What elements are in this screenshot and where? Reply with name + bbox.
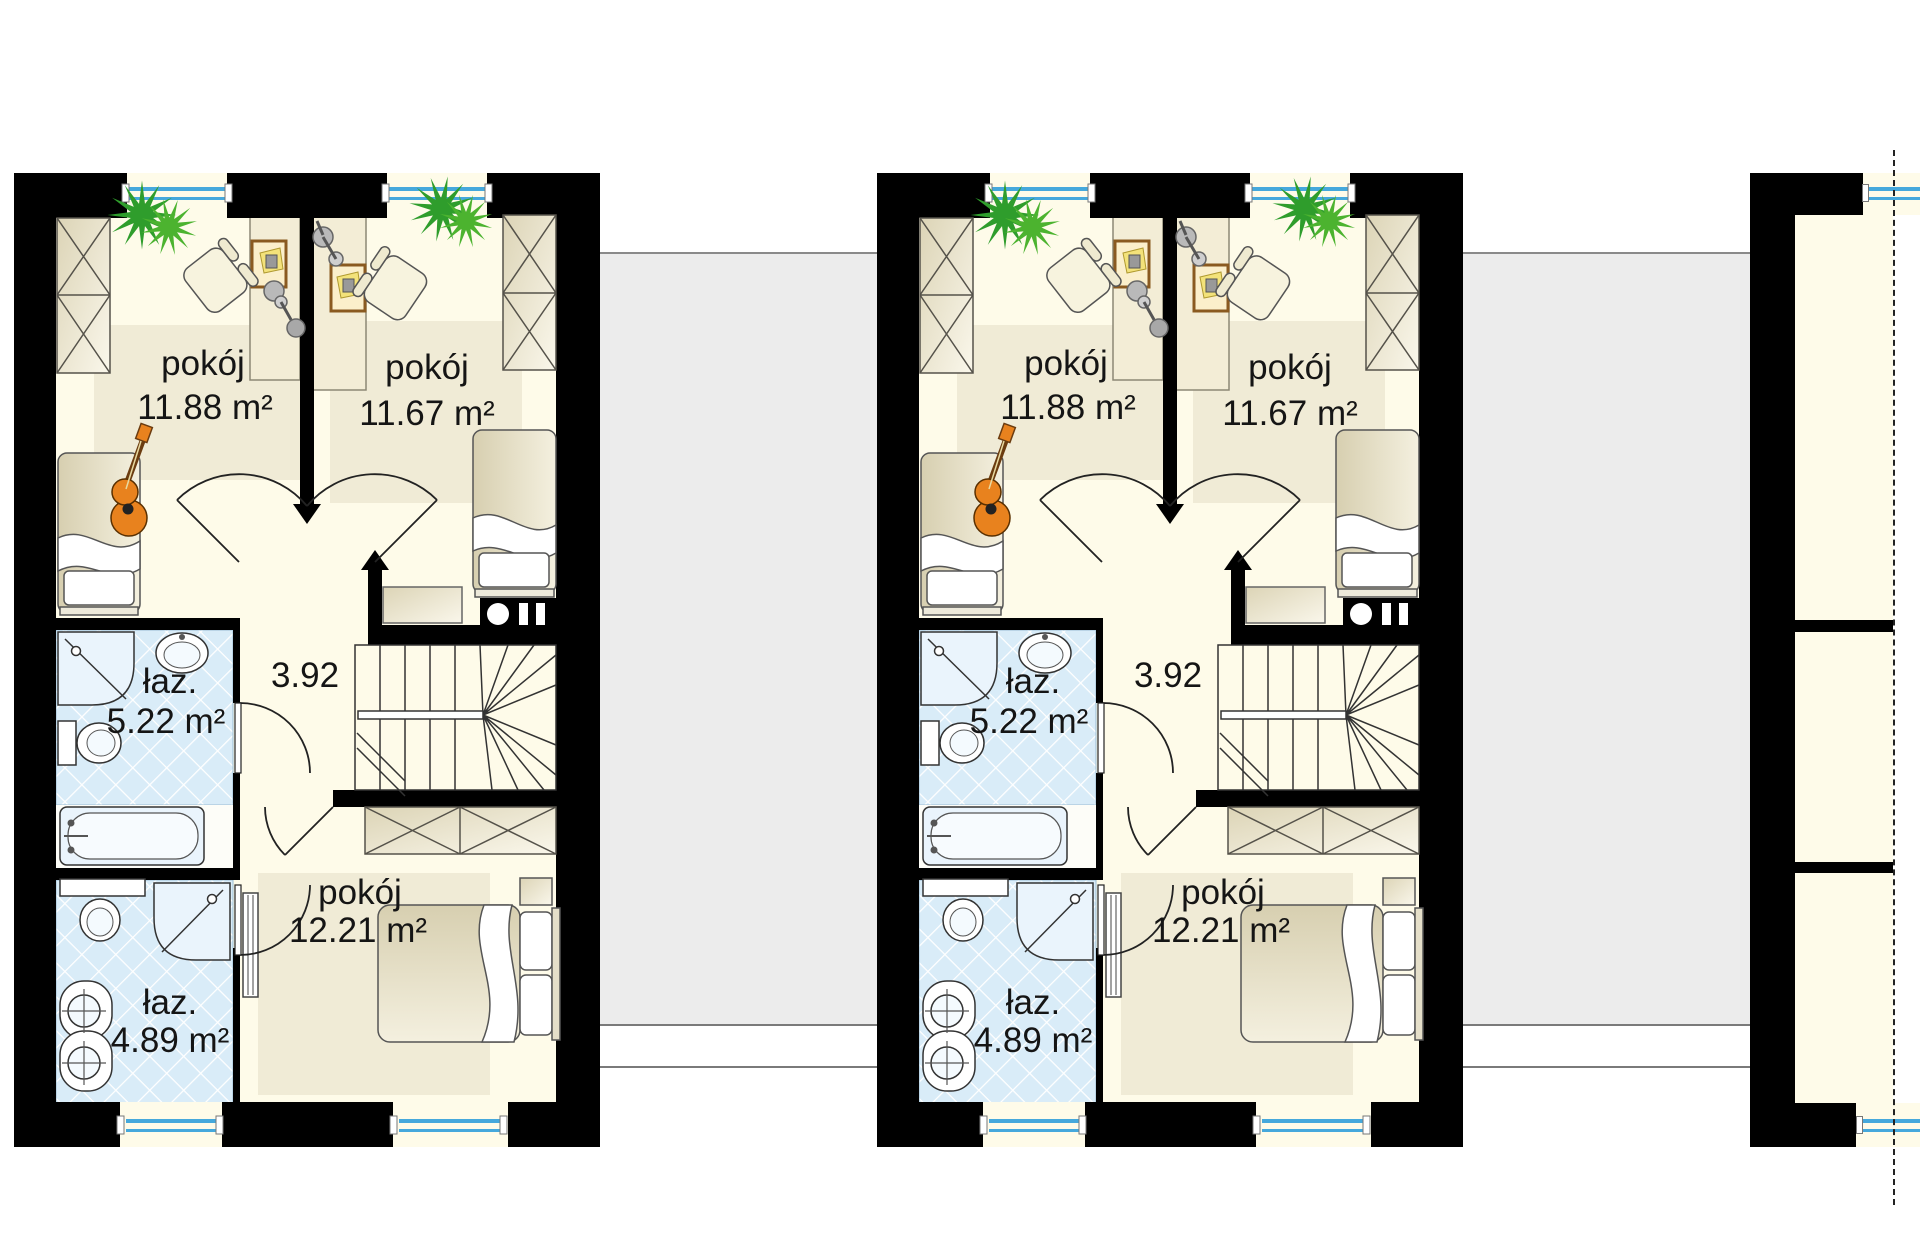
bath2-name-label: łaz. [1006,983,1060,1022]
room2-area-label: 11.67 m² [359,394,495,433]
unit-drawing: pokój 11.88 m² pokój 11.67 m² łaz. 5.22 … [14,173,600,1147]
floor-plan-canvas: pokój 11.88 m² pokój 11.67 m² łaz. 5.22 … [0,0,1920,1240]
bath2-area-label: 4.89 m² [111,1021,230,1060]
partial-top-wall [1750,173,1863,215]
bathtub-icon [60,807,204,865]
room1-area-label: 11.88 m² [1000,388,1136,427]
gap-right-step-line-2 [1463,1066,1750,1068]
window-jamb [1856,1116,1863,1134]
bath1-area-label: 5.22 m² [107,702,226,741]
partial-inner-wall-1 [1795,620,1893,632]
room1-name-label: pokój [161,344,245,383]
bath1-area-label: 5.22 m² [970,702,1089,741]
room1-area-label: 11.88 m² [137,388,273,427]
bath1-name-label: łaz. [1006,662,1060,701]
unit-left: pokój 11.88 m² pokój 11.67 m² łaz. 5.22 … [14,173,600,1147]
section-cut-dashed-line [1893,150,1895,1205]
bath2-area-label: 4.89 m² [974,1021,1093,1060]
room3-name-label: pokój [1181,873,1265,912]
chimney-icon [480,598,556,630]
room2-name-label: pokój [1248,348,1332,387]
room2-name-label: pokój [385,348,469,387]
window-bottom-right [1253,1102,1371,1147]
partial-unit-floor [1795,215,1893,1103]
neighbor-gap-right [1463,252,1750,1026]
room2-area-label: 11.67 m² [1222,394,1358,433]
gap-left-step-line-1 [600,1024,877,1026]
hallway-dimension-label: 3.92 [1134,656,1202,695]
partial-bottom-window [1862,1119,1920,1123]
shower-icon [1017,883,1093,960]
bath1-name-label: łaz. [143,662,197,701]
bathtub-icon [923,807,1067,865]
chimney-icon [1343,598,1419,630]
room3-area-label: 12.21 m² [289,911,427,950]
gap-right-step-line-1 [1463,1024,1750,1026]
unit-drawing: pokój 11.88 m² pokój 11.67 m² łaz. 5.22 … [877,173,1463,1147]
partial-left-wall [1750,173,1795,1147]
shower-icon [154,883,230,960]
stairs-icon [355,645,556,796]
unit-middle: pokój 11.88 m² pokój 11.67 m² łaz. 5.22 … [877,173,1463,1147]
partial-bottom-window [1862,1129,1920,1132]
window-jamb [1862,184,1869,202]
shower-icon [921,632,997,705]
room1-name-label: pokój [1024,344,1108,383]
room3-name-label: pokój [318,873,402,912]
partial-inner-wall-2 [1795,862,1893,873]
partial-bottom-wall [1750,1103,1856,1147]
room3-area-label: 12.21 m² [1152,911,1290,950]
stairs-icon [1218,645,1419,796]
hallway-dimension-label: 3.92 [271,656,339,695]
neighbor-gap-left [600,252,877,1026]
window-bottom-left [117,1102,223,1147]
window-bottom-right [390,1102,508,1147]
window-bottom-left [980,1102,1086,1147]
gap-left-step-line-2 [600,1066,877,1068]
partial-bottom-window-recess [1856,1103,1920,1147]
partial-top-window-recess [1863,173,1920,215]
shower-icon [58,632,134,705]
bath2-name-label: łaz. [143,983,197,1022]
